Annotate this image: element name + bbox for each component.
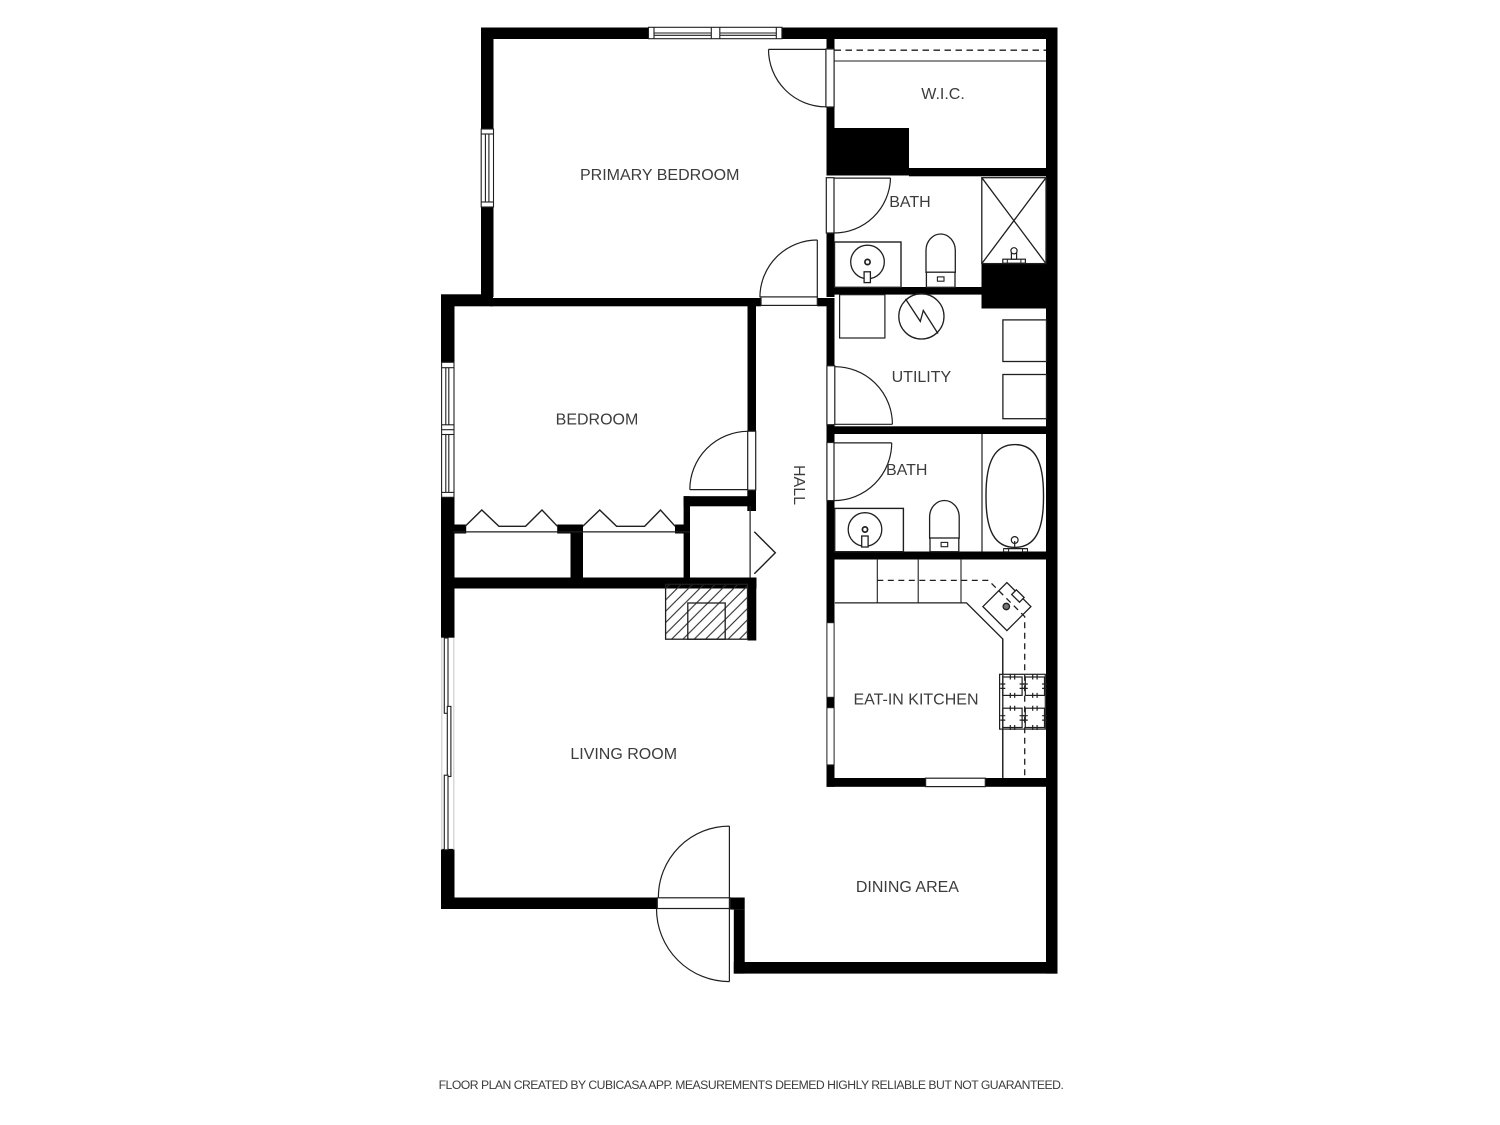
svg-text:HALL: HALL xyxy=(790,465,807,505)
svg-text:BEDROOM: BEDROOM xyxy=(556,412,639,429)
svg-text:W.I.C.: W.I.C. xyxy=(921,86,965,103)
svg-text:UTILITY: UTILITY xyxy=(892,369,952,386)
svg-text:FLOOR PLAN CREATED BY CUBICASA: FLOOR PLAN CREATED BY CUBICASA APP. MEAS… xyxy=(439,1078,1064,1092)
svg-text:DINING AREA: DINING AREA xyxy=(856,879,959,896)
svg-text:PRIMARY BEDROOM: PRIMARY BEDROOM xyxy=(580,167,739,184)
svg-text:LIVING ROOM: LIVING ROOM xyxy=(570,746,677,763)
svg-text:BATH: BATH xyxy=(889,194,930,211)
svg-text:EAT-IN KITCHEN: EAT-IN KITCHEN xyxy=(853,692,978,709)
svg-text:BATH: BATH xyxy=(886,462,927,479)
